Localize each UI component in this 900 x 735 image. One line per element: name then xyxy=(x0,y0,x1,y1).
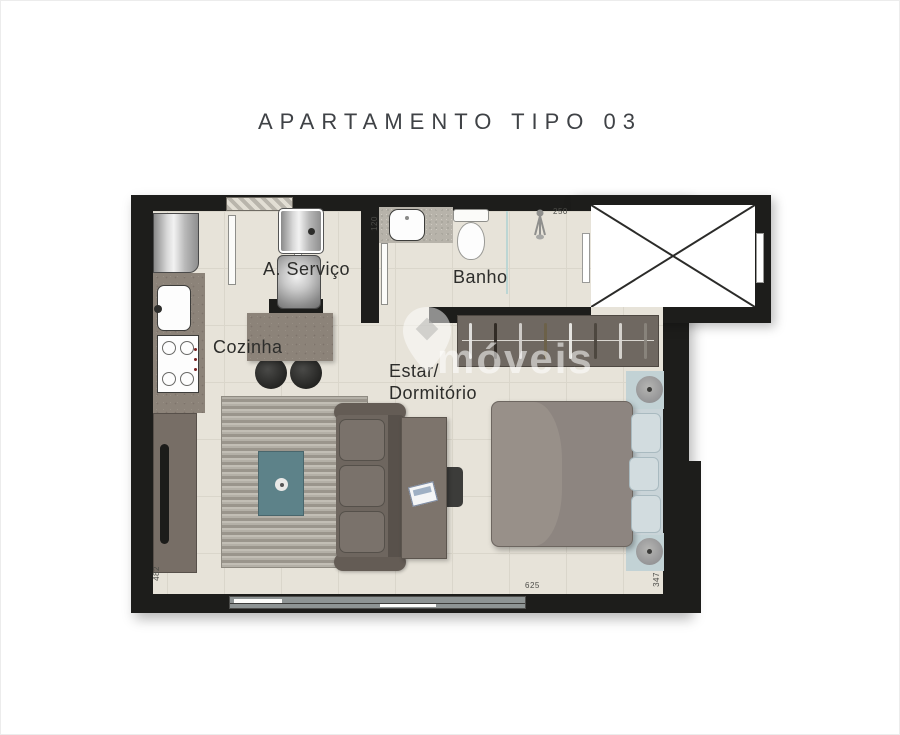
room-label-servico: A. Serviço xyxy=(263,259,350,280)
bed-pillow xyxy=(629,457,659,491)
pouf-lamp xyxy=(636,376,663,403)
page-title: APARTAMENTO TIPO 03 xyxy=(1,109,899,135)
pouf-lamp xyxy=(636,538,663,565)
room-label-banho: Banho xyxy=(453,267,508,288)
bed-pillow xyxy=(631,413,661,453)
dim-banho-vanity: 120 xyxy=(370,216,379,231)
dim-banho-width: 250 xyxy=(553,207,568,216)
floorplan: A. Serviço Cozinha Banho Estar/ Dormitór… xyxy=(131,189,771,613)
shaft-void xyxy=(591,205,755,307)
fridge xyxy=(153,213,199,273)
sink-drain-icon xyxy=(405,216,409,220)
toilet-bowl xyxy=(457,222,485,260)
dining-chair xyxy=(255,357,287,389)
knob-icon xyxy=(194,358,197,361)
tv-cabinet xyxy=(153,413,197,573)
hanger-icon xyxy=(619,323,622,359)
faucet-icon xyxy=(154,305,162,313)
sofa-body xyxy=(336,415,404,557)
dining-chair xyxy=(290,357,322,389)
tank-drain-icon xyxy=(308,228,315,235)
floorplan-page: APARTAMENTO TIPO 03 xyxy=(0,0,900,735)
burner-icon xyxy=(180,372,194,386)
shaft-window-left xyxy=(582,233,590,283)
shaft-window-right xyxy=(756,233,764,283)
bed-duvet xyxy=(491,401,633,547)
desk xyxy=(401,417,447,559)
sofa-cushion xyxy=(339,465,385,507)
hanger-icon xyxy=(644,323,647,359)
shaft-x-icon xyxy=(591,205,755,307)
burner-icon xyxy=(180,341,194,355)
toilet-tank xyxy=(453,209,489,222)
kitchen-sink xyxy=(157,285,191,331)
laundry-tank xyxy=(279,209,323,253)
window-track xyxy=(230,603,525,604)
dim-living-bottom: 625 xyxy=(525,581,540,590)
watermark-text: móveis xyxy=(437,335,594,383)
laptop-icon xyxy=(408,481,438,507)
bed-pillow xyxy=(631,495,661,533)
room-label-cozinha: Cozinha xyxy=(213,337,283,358)
tv-icon xyxy=(160,444,169,544)
stove xyxy=(157,335,199,393)
wall-right-step xyxy=(685,461,701,613)
hanger-icon xyxy=(594,323,597,359)
table-decor-icon xyxy=(275,478,288,491)
sofa-cushion xyxy=(339,511,385,553)
bathroom-door-leaf xyxy=(381,243,388,305)
bed-duvet-fold xyxy=(492,402,562,546)
balcony-sliding-door xyxy=(229,596,526,609)
sofa-cushion xyxy=(339,419,385,461)
dim-living-left: 482 xyxy=(152,566,161,581)
shower-head-icon xyxy=(529,209,551,241)
dim-bedroom-right: 347 xyxy=(652,572,661,587)
entrance-door-leaf xyxy=(228,215,236,285)
coffee-table xyxy=(258,451,304,516)
burner-icon xyxy=(162,341,176,355)
knob-icon xyxy=(194,348,197,351)
bathroom-sink xyxy=(389,209,425,241)
room-label-estar-line2: Dormitório xyxy=(389,383,477,404)
burner-icon xyxy=(162,372,176,386)
knob-icon xyxy=(194,368,197,371)
